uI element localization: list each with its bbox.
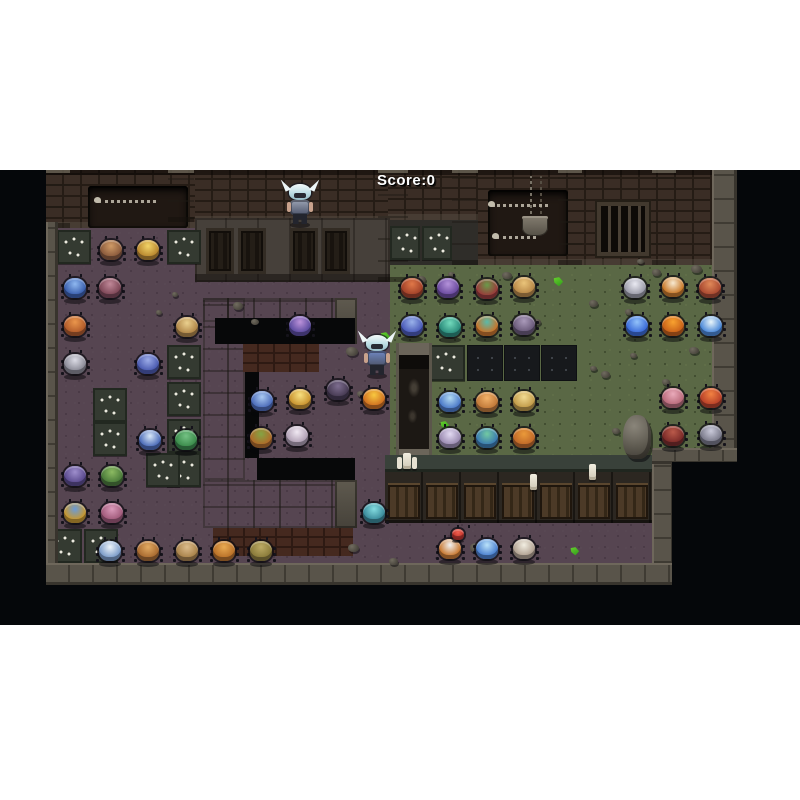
- monster-shadow: [401, 336, 424, 342]
- monster-shadow: [662, 408, 685, 414]
- monster-crystal-bug[interactable]: [435, 390, 465, 418]
- monster-dark-red-beetle[interactable]: [658, 424, 688, 452]
- monster-shadow: [137, 260, 160, 266]
- bucket: [522, 216, 548, 236]
- monster-cobalt-spider[interactable]: [622, 314, 652, 342]
- monster-shadow: [439, 448, 462, 454]
- monster-amber-moth[interactable]: [472, 390, 502, 418]
- monster-body: [626, 316, 648, 337]
- trap-tile: [167, 382, 201, 416]
- cabinet-panel: [206, 228, 234, 274]
- monster-red-hatchling[interactable]: [450, 528, 466, 543]
- monster-teal-spider[interactable]: [435, 315, 465, 343]
- monster-green-bug[interactable]: [97, 464, 127, 492]
- monster-gold-beetle[interactable]: [285, 387, 315, 415]
- monster-shadow: [662, 446, 685, 452]
- monster-body: [662, 426, 684, 447]
- monster-body: [513, 539, 535, 560]
- bone-pile: [496, 236, 536, 247]
- rock: [637, 259, 644, 264]
- monster-shadow: [101, 486, 124, 492]
- monster-body: [624, 278, 646, 299]
- monster-scarlet-butterfly[interactable]: [696, 386, 726, 414]
- hero-knight-center[interactable]: [363, 335, 391, 379]
- monster-body: [64, 278, 86, 299]
- monster-body: [176, 541, 198, 562]
- monster-body: [99, 541, 121, 562]
- monster-shadow: [439, 337, 462, 343]
- hero-face: [294, 193, 306, 198]
- monster-shadow: [699, 298, 722, 304]
- monster-body: [250, 428, 272, 449]
- rock: [348, 544, 359, 552]
- monster-shadow: [327, 400, 350, 406]
- score-label: Score:0: [377, 172, 436, 190]
- monster-body: [286, 426, 308, 447]
- monster-blue-butterfly[interactable]: [133, 352, 163, 380]
- border-v: [46, 222, 58, 563]
- monster-body: [64, 466, 86, 487]
- monster-pink-fluff[interactable]: [97, 501, 127, 529]
- bone-pile: [492, 204, 548, 215]
- monster-shadow: [476, 412, 499, 418]
- monster-body: [289, 389, 311, 410]
- monster-orange-green-bug[interactable]: [246, 426, 276, 454]
- hero-torso: [367, 351, 387, 366]
- monster-shadow: [513, 297, 536, 303]
- monster-red-beetle[interactable]: [397, 276, 427, 304]
- monster-turtle-bug[interactable]: [246, 539, 276, 567]
- monster-gold-ornate[interactable]: [133, 238, 163, 266]
- cabinet-panel: [290, 228, 318, 274]
- pillar: [558, 170, 582, 265]
- monster-body: [139, 430, 161, 451]
- monster-shadow: [452, 540, 464, 543]
- cwall-cap: [335, 480, 357, 528]
- monster-mauve-spider[interactable]: [509, 313, 539, 341]
- trap-tile: [93, 388, 127, 422]
- monster-shadow: [286, 446, 309, 452]
- monster-shadow: [513, 448, 536, 454]
- monster-body: [401, 278, 423, 299]
- monster-shadow: [513, 335, 536, 341]
- gate: [597, 202, 649, 256]
- dark-tile: [504, 345, 540, 381]
- monster-shadow: [213, 561, 236, 567]
- monster-dark-moth[interactable]: [323, 378, 353, 406]
- monster-body: [513, 277, 535, 298]
- monster-body: [700, 425, 722, 446]
- monster-shadow: [101, 523, 124, 529]
- monster-shadow: [250, 448, 273, 454]
- bone-pile: [98, 200, 156, 211]
- monster-body: [64, 354, 86, 375]
- candle: [589, 464, 596, 480]
- rock: [156, 310, 162, 315]
- monster-tan-moth[interactable]: [172, 539, 202, 567]
- monster-body: [101, 466, 123, 487]
- monster-shadow: [64, 523, 87, 529]
- cabinet-panel: [238, 228, 266, 274]
- candle: [530, 474, 537, 490]
- monster-flame-bug[interactable]: [359, 387, 389, 415]
- monster-rust-beetle[interactable]: [695, 276, 725, 304]
- monster-pumpkin-bug[interactable]: [509, 426, 539, 454]
- monster-shadow: [476, 559, 499, 565]
- monster-body: [64, 316, 86, 337]
- monster-shadow: [99, 561, 122, 567]
- monster-blue-crab[interactable]: [60, 276, 90, 304]
- monster-body: [476, 428, 498, 449]
- monster-body: [176, 317, 198, 338]
- monster-orange-shell-bug[interactable]: [133, 539, 163, 567]
- monster-shadow: [137, 561, 160, 567]
- monster-shadow: [64, 336, 87, 342]
- monster-ice-crystal-bug[interactable]: [472, 537, 502, 565]
- monster-body: [662, 277, 684, 298]
- monster-shadow: [439, 559, 462, 565]
- monster-gold-moth[interactable]: [509, 389, 539, 417]
- monster-ash-spider[interactable]: [696, 423, 726, 451]
- monster-shadow: [289, 336, 312, 342]
- monster-body: [476, 392, 498, 413]
- rock: [589, 300, 598, 307]
- monster-body: [101, 503, 123, 524]
- pillar: [46, 170, 70, 228]
- monster-blue-spider[interactable]: [247, 389, 277, 417]
- monster-body: [452, 529, 464, 540]
- monster-body: [700, 316, 722, 337]
- hero-torso: [290, 200, 310, 215]
- monster-violet-butterfly[interactable]: [285, 314, 315, 342]
- trap-tile: [146, 453, 180, 487]
- monster-teal-bug[interactable]: [359, 501, 389, 529]
- page-background: Score:0: [0, 0, 800, 800]
- rock: [346, 347, 358, 356]
- hero-face: [371, 344, 383, 349]
- mask: [672, 462, 800, 625]
- monster-body: [513, 315, 535, 336]
- monster-maroon-spider[interactable]: [95, 276, 125, 304]
- locker-panel: [540, 485, 572, 519]
- monster-body: [476, 539, 498, 560]
- rock: [691, 265, 702, 273]
- locker-panel: [388, 485, 420, 519]
- monster-pink-crab[interactable]: [658, 386, 688, 414]
- monster-shadow: [662, 297, 685, 303]
- monster-shadow: [64, 374, 87, 380]
- trap-tile: [167, 230, 201, 264]
- dark-tile: [541, 345, 577, 381]
- monster-body: [700, 388, 722, 409]
- monster-body: [363, 389, 385, 410]
- cabinet-panel: [322, 228, 350, 274]
- monster-shadow: [700, 336, 723, 342]
- locker-panel: [426, 485, 458, 519]
- trap-tile: [57, 230, 91, 264]
- monster-white-grey-spider[interactable]: [620, 276, 650, 304]
- pillar: [452, 170, 478, 265]
- rock: [389, 558, 398, 565]
- monster-body: [250, 541, 272, 562]
- monster-body: [213, 541, 235, 562]
- monster-body: [439, 317, 461, 338]
- pillar: [168, 170, 194, 222]
- rock: [689, 347, 699, 354]
- monster-flame-spider[interactable]: [658, 314, 688, 342]
- monster-orange-ball[interactable]: [60, 314, 90, 342]
- monster-shadow: [513, 559, 536, 565]
- monster-body: [662, 316, 684, 337]
- monster-white-diamond-bug[interactable]: [95, 539, 125, 567]
- monster-shadow: [363, 409, 386, 415]
- monster-red-green-bug[interactable]: [472, 277, 502, 305]
- rock: [612, 428, 620, 434]
- monster-grey-spider[interactable]: [60, 352, 90, 380]
- monster-lilac-spider[interactable]: [435, 426, 465, 454]
- monster-shadow: [64, 298, 87, 304]
- monster-gold-knight-bug[interactable]: [60, 501, 90, 529]
- dark-tile: [467, 345, 503, 381]
- altar: [396, 343, 432, 461]
- locker-panel: [616, 485, 648, 519]
- monster-body: [137, 240, 159, 261]
- rock: [251, 319, 259, 325]
- rock: [233, 302, 243, 310]
- monster-body: [662, 388, 684, 409]
- monster-body: [327, 380, 349, 401]
- monster-shadow: [476, 448, 499, 454]
- monster-shadow: [250, 561, 273, 567]
- monster-green-mantis[interactable]: [171, 428, 201, 456]
- monster-teal-dragonfly[interactable]: [472, 426, 502, 454]
- monster-shadow: [476, 336, 499, 342]
- monster-body: [137, 541, 159, 562]
- monster-blue-white-bug[interactable]: [135, 428, 165, 456]
- monster-shadow: [513, 411, 536, 417]
- monster-body: [476, 279, 498, 300]
- monster-shadow: [439, 412, 462, 418]
- monster-tan-butterfly[interactable]: [172, 315, 202, 343]
- monster-shadow: [476, 299, 499, 305]
- big-rock: [623, 415, 651, 459]
- monster-pale-moth[interactable]: [509, 537, 539, 565]
- trap-tile: [422, 226, 452, 260]
- locker-panel: [464, 485, 496, 519]
- monster-shadow: [624, 298, 647, 304]
- monster-shadow: [289, 409, 312, 415]
- monster-body: [137, 354, 159, 375]
- monster-shadow: [176, 337, 199, 343]
- monster-body: [513, 391, 535, 412]
- monster-body: [99, 278, 121, 299]
- monster-orange-striped-beetle[interactable]: [658, 275, 688, 303]
- monster-shadow: [662, 336, 685, 342]
- locker-panel: [502, 485, 534, 519]
- monster-shadow: [626, 336, 649, 342]
- monster-purple-spider[interactable]: [60, 464, 90, 492]
- monster-body: [437, 278, 459, 299]
- monster-shadow: [99, 298, 122, 304]
- monster-body: [64, 503, 86, 524]
- monster-shadow: [363, 523, 386, 529]
- monster-body: [289, 316, 311, 337]
- monster-shadow: [401, 298, 424, 304]
- monster-blue-orb-bug[interactable]: [696, 314, 726, 342]
- monster-body: [401, 316, 423, 337]
- rock: [590, 366, 597, 371]
- monster-shadow: [176, 561, 199, 567]
- cwall: [203, 480, 357, 528]
- trap-tile: [429, 345, 465, 381]
- monster-shadow: [251, 411, 274, 417]
- void: [257, 458, 355, 480]
- game-viewport[interactable]: Score:0: [0, 170, 800, 625]
- monster-shadow: [437, 298, 460, 304]
- monster-shadow: [175, 450, 198, 456]
- monster-white-spider[interactable]: [282, 424, 312, 452]
- monster-tan-beetle[interactable]: [509, 275, 539, 303]
- monster-blue-moth[interactable]: [397, 314, 427, 342]
- monster-brown-round[interactable]: [96, 238, 126, 266]
- monster-body: [513, 428, 535, 449]
- locker-panel: [578, 485, 610, 519]
- monster-shadow: [64, 486, 87, 492]
- rock: [601, 371, 610, 378]
- rock: [172, 292, 178, 297]
- candle-triple: [403, 453, 411, 469]
- monster-body: [699, 278, 721, 299]
- trap-tile: [167, 345, 201, 379]
- monster-body: [363, 503, 385, 524]
- monster-body: [439, 392, 461, 413]
- monster-shadow: [137, 374, 160, 380]
- monster-body: [251, 391, 273, 412]
- monster-shadow: [700, 408, 723, 414]
- monster-body: [100, 240, 122, 261]
- monster-body: [439, 428, 461, 449]
- rock: [630, 353, 637, 358]
- monster-purple-butterfly[interactable]: [433, 276, 463, 304]
- brick-face: [243, 344, 319, 372]
- trap-tile: [390, 226, 420, 260]
- monster-shadow: [700, 445, 723, 451]
- monster-body: [175, 430, 197, 451]
- trap-tile: [93, 422, 127, 456]
- monster-body: [476, 316, 498, 337]
- hero-knight-top[interactable]: [286, 184, 314, 228]
- monster-shadow: [100, 260, 123, 266]
- monster-orange-butterfly[interactable]: [209, 539, 239, 567]
- monster-shadow: [139, 450, 162, 456]
- monster-orange-teal-spider[interactable]: [472, 314, 502, 342]
- pillar: [652, 170, 676, 265]
